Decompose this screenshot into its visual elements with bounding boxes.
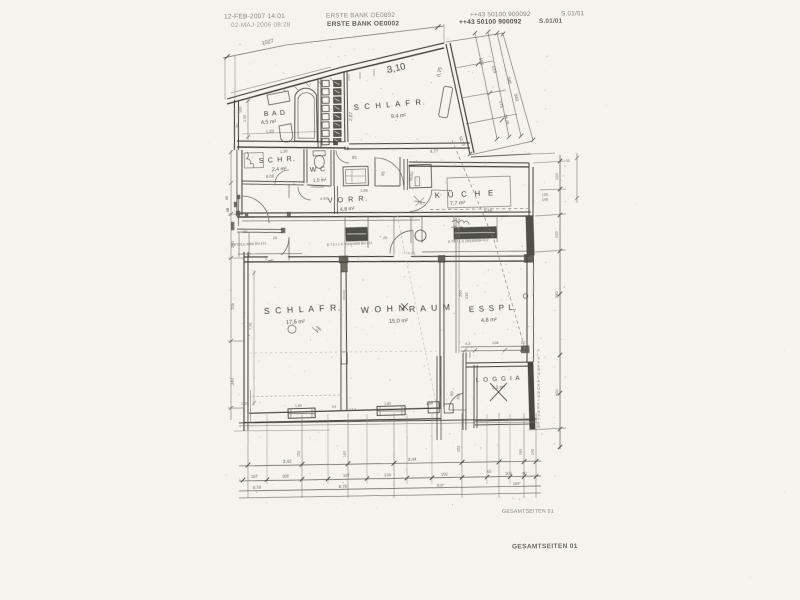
svg-text:253: 253 [457, 446, 461, 452]
svg-text:8,78: 8,78 [253, 485, 262, 490]
svg-text:S.01/01: S.01/01 [561, 10, 585, 17]
svg-text:4,8 m²: 4,8 m² [481, 317, 497, 324]
svg-text:705: 705 [230, 302, 235, 310]
svg-text:103°: 103° [513, 482, 522, 486]
svg-text:1,30: 1,30 [280, 148, 289, 154]
svg-text:134: 134 [384, 472, 392, 477]
svg-text:8,78: 8,78 [339, 484, 348, 489]
svg-text:1,55: 1,55 [266, 128, 275, 134]
svg-text:65: 65 [352, 155, 357, 160]
svg-text:12-FEB-2007 14:01: 12-FEB-2007 14:01 [224, 13, 285, 21]
svg-text:4,8 m²: 4,8 m² [340, 206, 355, 213]
svg-text:25: 25 [383, 236, 387, 240]
svg-text:140: 140 [542, 198, 549, 202]
svg-text:GESAMTSEITEN 01: GESAMTSEITEN 01 [502, 509, 554, 515]
svg-text:260: 260 [458, 290, 463, 298]
svg-text:7,14: 7,14 [349, 408, 356, 412]
svg-text:8,00: 8,00 [266, 173, 275, 179]
svg-text:4,5 m²: 4,5 m² [261, 119, 277, 126]
svg-text:192: 192 [441, 471, 449, 476]
svg-text:ERSTE BANK OE0892: ERSTE BANK OE0892 [326, 12, 395, 20]
svg-text:128: 128 [492, 340, 500, 345]
svg-text:1,00: 1,00 [243, 115, 247, 122]
svg-text:100: 100 [554, 172, 559, 180]
svg-text:100: 100 [554, 231, 559, 239]
svg-text:380: 380 [554, 291, 559, 299]
svg-text:9,4 m²: 9,4 m² [391, 113, 407, 120]
svg-text:1,80: 1,80 [384, 402, 391, 406]
svg-text:W C: W C [310, 166, 327, 174]
svg-text:162: 162 [343, 451, 347, 457]
svg-text:4,77: 4,77 [430, 149, 439, 154]
svg-text:4,90: 4,90 [320, 196, 329, 201]
svg-text:15,0 m²: 15,0 m² [389, 318, 408, 325]
svg-text:17,6 m²: 17,6 m² [286, 319, 305, 326]
svg-text:ERSTE BANK OE0002: ERSTE BANK OE0002 [327, 20, 399, 28]
svg-text:340: 340 [230, 377, 235, 385]
svg-text:++43 50100 900092: ++43 50100 900092 [459, 18, 522, 26]
svg-text:R A U M: R A U M [409, 302, 452, 314]
svg-text:1,88: 1,88 [360, 188, 369, 193]
svg-text:152: 152 [297, 451, 301, 457]
svg-text:54: 54 [332, 405, 336, 409]
svg-text:20: 20 [566, 159, 570, 163]
svg-text:3,42: 3,42 [283, 459, 292, 464]
svg-text:600: 600 [554, 389, 559, 397]
svg-text:90: 90 [225, 196, 229, 200]
svg-text:S.01/01: S.01/01 [539, 18, 563, 25]
svg-text:7,48: 7,48 [249, 323, 253, 330]
svg-text:100: 100 [238, 107, 242, 113]
svg-text:1,90: 1,90 [426, 402, 433, 406]
svg-text:137: 137 [343, 473, 351, 478]
svg-text:2,67: 2,67 [348, 111, 353, 121]
svg-text:103: 103 [519, 449, 523, 455]
svg-text:1,00: 1,00 [241, 402, 248, 406]
svg-text:30: 30 [235, 123, 240, 128]
svg-text:1,80: 1,80 [295, 404, 302, 408]
svg-text:103: 103 [505, 471, 513, 476]
svg-text:++43 50100 900092: ++43 50100 900092 [470, 11, 531, 19]
svg-text:235: 235 [464, 292, 469, 300]
svg-text:105: 105 [542, 193, 549, 197]
svg-text:02-MAJ-2006 08:28: 02-MAJ-2006 08:28 [231, 21, 291, 29]
svg-text:GESAMTSEITEN 01: GESAMTSEITEN 01 [512, 543, 578, 551]
svg-text:2,44: 2,44 [408, 457, 417, 462]
svg-text:25: 25 [273, 236, 277, 240]
svg-text:9,0°: 9,0° [437, 483, 445, 488]
svg-text:157: 157 [251, 474, 259, 479]
svg-text:7,7 m²: 7,7 m² [450, 200, 466, 207]
svg-text:B A D: B A D [264, 110, 286, 118]
svg-text:20: 20 [521, 341, 525, 345]
svg-text:168: 168 [282, 473, 290, 478]
svg-text:140: 140 [531, 449, 535, 455]
svg-text:2,4 m²: 2,4 m² [272, 166, 287, 173]
svg-text:4,5: 4,5 [465, 341, 471, 346]
svg-text:1,0 m²: 1,0 m² [313, 177, 327, 184]
